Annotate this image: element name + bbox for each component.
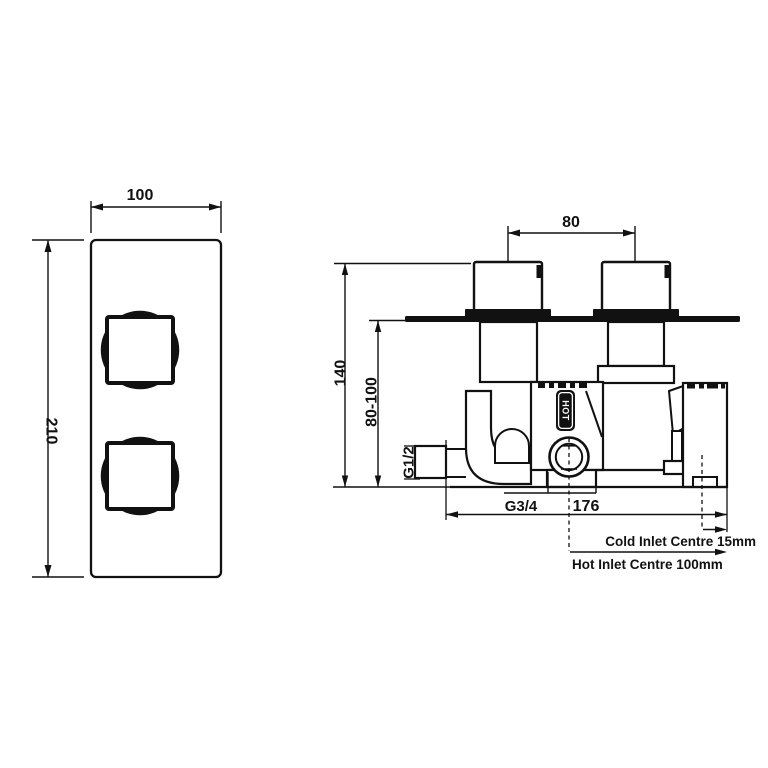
front-handle-upper: [104, 314, 176, 386]
front-height-dimension: [32, 240, 84, 577]
front-view: 100 210: [32, 187, 221, 577]
body-width-dimension-label: 176: [573, 498, 600, 515]
hot-badge-label: HOT: [561, 400, 571, 421]
arrowhead-icon: [715, 511, 727, 517]
arrowhead-icon: [508, 230, 520, 237]
front-width-dimension-label: 100: [127, 187, 154, 204]
front-height-dimension-label: 210: [43, 418, 60, 445]
pipe-dome: [495, 429, 529, 463]
hot-inlet-note: Hot Inlet Centre 100mm: [572, 557, 723, 572]
arrowhead-icon: [446, 511, 458, 517]
arrowhead-icon: [45, 565, 52, 577]
valve-stem-left: [480, 322, 537, 382]
handle-marker: [537, 265, 542, 278]
arrowhead-icon: [342, 476, 348, 488]
handle-square: [107, 317, 173, 383]
outlet-thread-label: G1/2: [401, 446, 418, 479]
handle-marker: [665, 265, 670, 278]
arrowhead-icon: [91, 204, 103, 211]
technical-drawing-page: 100 210 8: [0, 0, 768, 768]
side-handle-left: [465, 262, 551, 318]
arrowhead-icon: [715, 526, 727, 532]
arrowhead-icon: [375, 476, 381, 488]
arrowhead-icon: [45, 240, 52, 252]
side-height-dimension-label: 140: [333, 360, 350, 387]
handle-square: [107, 443, 173, 509]
inlet-thread-label: G3/4: [505, 498, 538, 515]
valve-nut-right: [598, 366, 674, 383]
cold-side-body: [664, 383, 727, 487]
arrowhead-icon: [342, 264, 348, 276]
valve-stem-right: [608, 322, 664, 366]
arrowhead-icon: [375, 321, 381, 333]
cold-inlet-callout: [703, 526, 727, 532]
front-plate: [91, 240, 221, 577]
front-handle-lower: [104, 440, 176, 512]
cold-inlet-stub: [693, 477, 717, 487]
arrowhead-icon: [209, 204, 221, 211]
handle-centres-dimension: [508, 226, 635, 261]
handle-collar: [593, 309, 679, 318]
arrowhead-icon: [623, 230, 635, 237]
side-handle-right: [593, 262, 679, 318]
valve-technical-drawing: 100 210 8: [0, 0, 768, 768]
wall-depth-dimension-label: 80-100: [364, 377, 381, 427]
front-width-dimension: [91, 201, 221, 233]
handle-centres-dimension-label: 80: [562, 214, 580, 231]
side-view: 80 G1/2: [333, 214, 757, 572]
wall-plate-edge: [405, 316, 740, 322]
hot-inlet-callout: [570, 549, 727, 555]
cold-inlet-note: Cold Inlet Centre 15mm: [605, 534, 756, 549]
handle-collar: [465, 309, 551, 318]
arrowhead-icon: [715, 549, 727, 555]
